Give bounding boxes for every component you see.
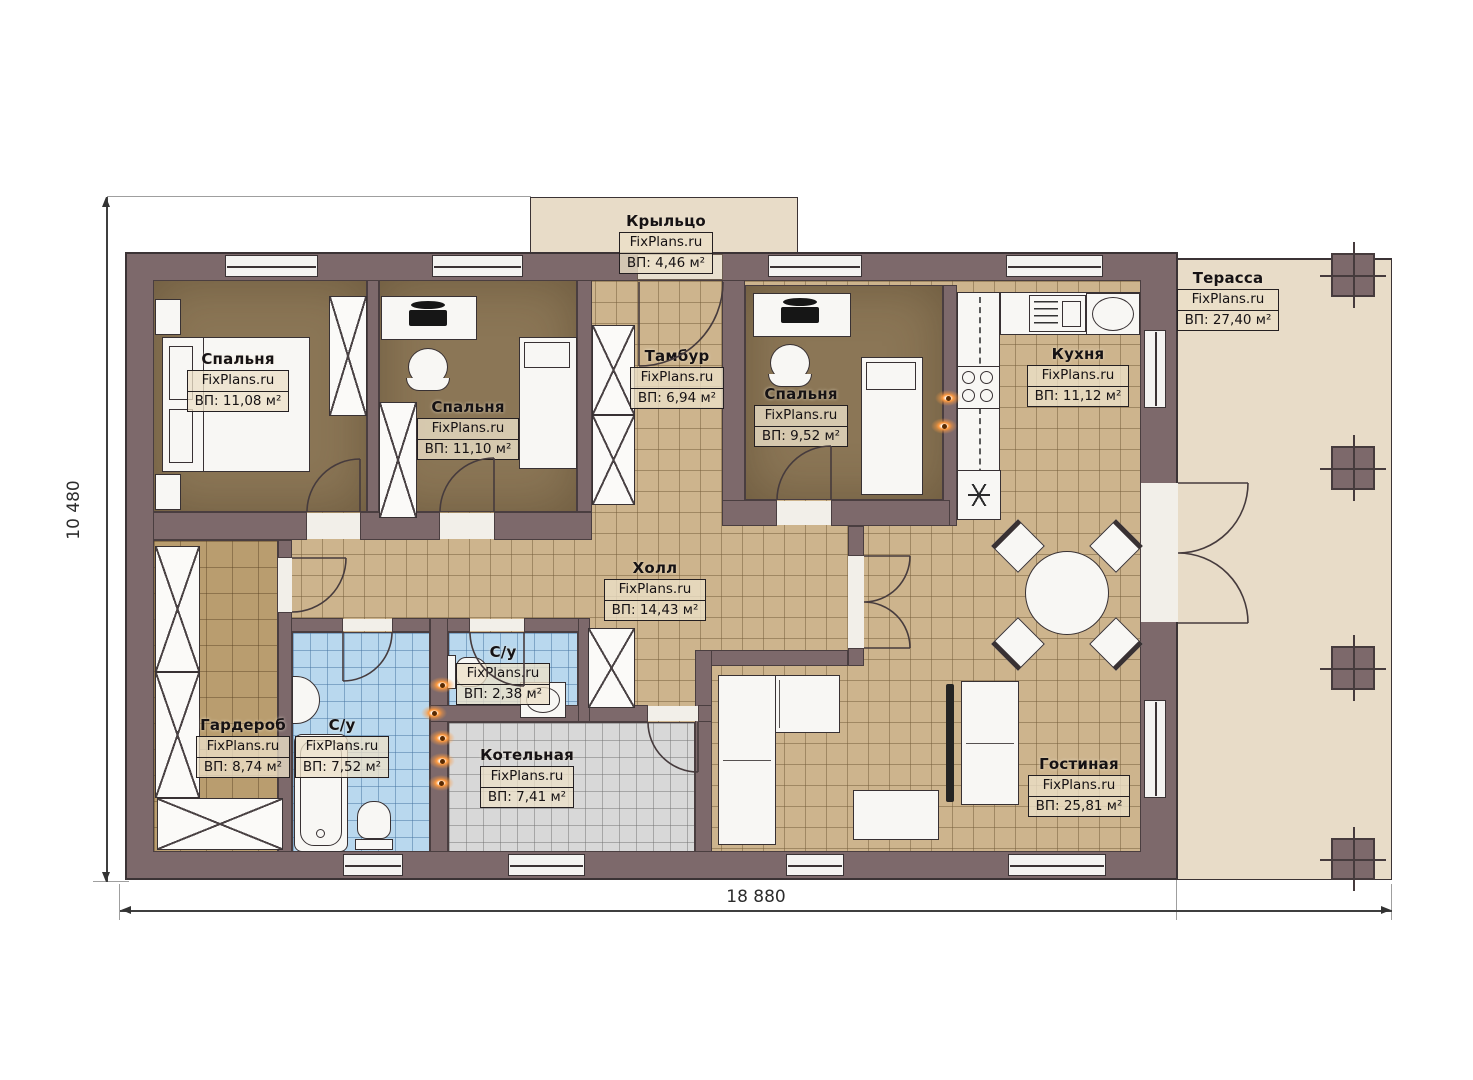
room-label-porch: Крыльцо FixPlans.ruВП: 4,46 м² [611, 212, 721, 274]
room-area: ВП: 6,94 м² [631, 389, 723, 409]
coffee-table-icon [853, 790, 939, 840]
dimension-height-label: 10 480 [64, 470, 84, 550]
brand-label: FixPlans.ru [481, 767, 573, 788]
utility-marker-icon [429, 753, 455, 769]
room-label-terrace: Терасса FixPlans.ruВП: 27,40 м² [1173, 269, 1283, 331]
extension-line-bl [119, 884, 120, 920]
chair-icon [770, 344, 810, 382]
nightstand-icon [155, 299, 181, 335]
room-area: ВП: 11,08 м² [188, 392, 289, 412]
wall-wardrobe-right [278, 540, 292, 558]
window-bedroom3 [768, 255, 862, 277]
window-bedroom2 [432, 255, 523, 277]
kitchen-sink-drainer-icon [1029, 295, 1086, 332]
door-opening-hall-dining [848, 556, 864, 648]
room-name: Спальня [201, 350, 274, 368]
terrace-post [1331, 646, 1375, 690]
brand-label: FixPlans.ru [631, 368, 723, 389]
dining-table-icon [1025, 551, 1109, 635]
room-area: ВП: 14,43 м² [605, 601, 706, 621]
brand-label: FixPlans.ru [1029, 776, 1130, 797]
nightstand-icon [155, 474, 181, 510]
utility-marker-icon [421, 705, 447, 721]
room-name: С/у [490, 643, 517, 661]
door-opening-terrace [1141, 483, 1178, 622]
single-bed-icon [861, 357, 923, 495]
room-area: ВП: 8,74 м² [197, 758, 289, 778]
room-area: ВП: 7,41 м² [481, 788, 573, 808]
room-area: ВП: 2,38 м² [457, 685, 549, 705]
pillow-icon [866, 362, 916, 390]
brand-label: FixPlans.ru [1028, 366, 1129, 387]
stove-icon [957, 366, 1000, 409]
door-opening-bedroom2 [440, 513, 494, 539]
room-label-bathroom-small: С/у FixPlans.ruВП: 2,38 м² [448, 643, 558, 705]
room-area: ВП: 7,52 м² [296, 758, 388, 778]
room-name: Гардероб [200, 716, 286, 734]
terrace-floor [1178, 258, 1392, 880]
room-area: ВП: 25,81 м² [1029, 797, 1130, 817]
window-kitchen [1006, 255, 1103, 277]
room-label-wardrobe: Гардероб FixPlans.ruВП: 8,74 м² [188, 716, 298, 778]
room-label-kitchen: Кухня FixPlans.ruВП: 11,12 м² [1023, 345, 1133, 407]
wall-bedroom3-bottom [722, 500, 777, 526]
closet-icon [592, 415, 635, 505]
door-opening-wardrobe [278, 558, 292, 612]
printer-icon [781, 307, 819, 323]
room-label-boiler: Котельная FixPlans.ruВП: 7,41 м² [472, 746, 582, 808]
room-name: Кухня [1052, 345, 1105, 363]
room-name: Котельная [480, 746, 574, 764]
room-area: ВП: 4,46 м² [620, 254, 712, 274]
door-opening-bedroom3 [777, 501, 831, 525]
closet-icon [588, 628, 635, 708]
dimension-line-left [106, 197, 108, 882]
room-name: Крыльцо [626, 212, 706, 230]
extension-line-br [1391, 884, 1392, 920]
room-label-living: Гостиная FixPlans.ruВП: 25,81 м² [1024, 755, 1134, 817]
extension-line-bottom-left [93, 881, 129, 882]
door-opening-bathroom-small [470, 619, 524, 631]
door-opening-bedroom1 [307, 513, 360, 539]
room-name: Спальня [431, 398, 504, 416]
floor-plan: 10 480 18 880 [0, 0, 1473, 1080]
wall-hall-dining [848, 526, 864, 556]
toilet-tank-icon [355, 839, 393, 850]
room-label-bathroom-main: С/у FixPlans.ruВП: 7,52 м² [287, 716, 397, 778]
pillow-icon [169, 409, 193, 463]
tv-stand-icon [961, 681, 1019, 805]
single-bed-icon [519, 337, 577, 469]
utility-marker-icon [428, 775, 454, 791]
pillow-icon [524, 342, 570, 368]
wall-bedrooms-bottom [494, 512, 592, 540]
door-opening-boiler [648, 706, 698, 721]
brand-label: FixPlans.ru [418, 419, 519, 440]
window-dining [1144, 330, 1166, 408]
terrace-post [1331, 253, 1375, 297]
brand-label: FixPlans.ru [457, 664, 549, 685]
brand-label: FixPlans.ru [197, 737, 289, 758]
wardrobe-cabinet-icon [329, 296, 367, 416]
dimension-arrow-up [102, 197, 110, 207]
room-label-bedroom1: Спальня FixPlans.ruВП: 11,08 м² [183, 350, 293, 412]
room-label-tambour: Тамбур FixPlans.ruВП: 6,94 м² [622, 347, 732, 409]
wall-bedroom1-bedroom2 [367, 280, 379, 512]
kitchen-sink-icon [1086, 293, 1140, 335]
extension-line-bm [1176, 880, 1177, 920]
terrace-post [1331, 838, 1375, 880]
window-boiler [508, 854, 585, 876]
brand-label: FixPlans.ru [296, 737, 388, 758]
extension-line-top [107, 196, 531, 197]
room-label-hall: Холл FixPlans.ruВП: 14,43 м² [600, 559, 710, 621]
utility-marker-icon [935, 390, 961, 406]
brand-label: FixPlans.ru [188, 371, 289, 392]
room-name: С/у [329, 716, 356, 734]
room-area: ВП: 27,40 м² [1178, 311, 1279, 331]
wall-living-boiler [695, 650, 712, 852]
utility-marker-icon [429, 730, 455, 746]
room-name: Спальня [764, 385, 837, 403]
wall-hall-living [695, 650, 848, 666]
room-name: Холл [633, 559, 678, 577]
wall-bedroom3-bottom [831, 500, 950, 526]
tv-icon [946, 684, 954, 802]
room-name: Гостиная [1039, 755, 1119, 773]
wall-hall-dining [848, 648, 864, 666]
dimension-arrow-down [102, 872, 110, 882]
brand-label: FixPlans.ru [1178, 290, 1279, 311]
room-area: ВП: 9,52 м² [755, 427, 847, 447]
wardrobe-cabinet-icon [157, 798, 283, 850]
room-name: Тамбур [645, 347, 710, 365]
brand-label: FixPlans.ru [620, 233, 712, 254]
wardrobe-cabinet-icon [379, 402, 417, 518]
window-living-right [1144, 700, 1166, 798]
toilet-icon [357, 801, 391, 839]
fridge-icon [957, 470, 1001, 520]
dimension-arrow-right [1381, 906, 1391, 914]
window-living-1 [786, 854, 844, 876]
chair-icon [408, 348, 448, 386]
room-area: ВП: 11,10 м² [418, 440, 519, 460]
window-bathroom-main [343, 854, 403, 876]
printer-icon [409, 310, 447, 326]
dimension-width-label: 18 880 [691, 887, 821, 907]
window-bedroom1 [225, 255, 318, 277]
terrace-post [1331, 446, 1375, 490]
room-name: Терасса [1193, 269, 1264, 287]
wall-bedroom2-tambour [577, 280, 592, 512]
door-opening-bathroom-main [343, 619, 392, 631]
wall-bedrooms-bottom [153, 512, 307, 540]
brand-label: FixPlans.ru [605, 580, 706, 601]
wall-boiler-top [698, 705, 712, 722]
wall-hall-bathroom-main [392, 618, 430, 632]
wall-hall-bathroom-main [285, 618, 343, 632]
room-label-bedroom2: Спальня FixPlans.ruВП: 11,10 м² [413, 398, 523, 460]
brand-label: FixPlans.ru [755, 406, 847, 427]
utility-marker-icon [931, 418, 957, 434]
dimension-arrow-left [121, 906, 131, 914]
wardrobe-cabinet-icon [155, 546, 200, 672]
window-living-2 [1008, 854, 1106, 876]
room-label-bedroom3: Спальня FixPlans.ruВП: 9,52 м² [746, 385, 856, 447]
sofa-icon [718, 675, 776, 845]
room-area: ВП: 11,12 м² [1028, 387, 1129, 407]
dimension-line-bottom [120, 910, 1392, 912]
